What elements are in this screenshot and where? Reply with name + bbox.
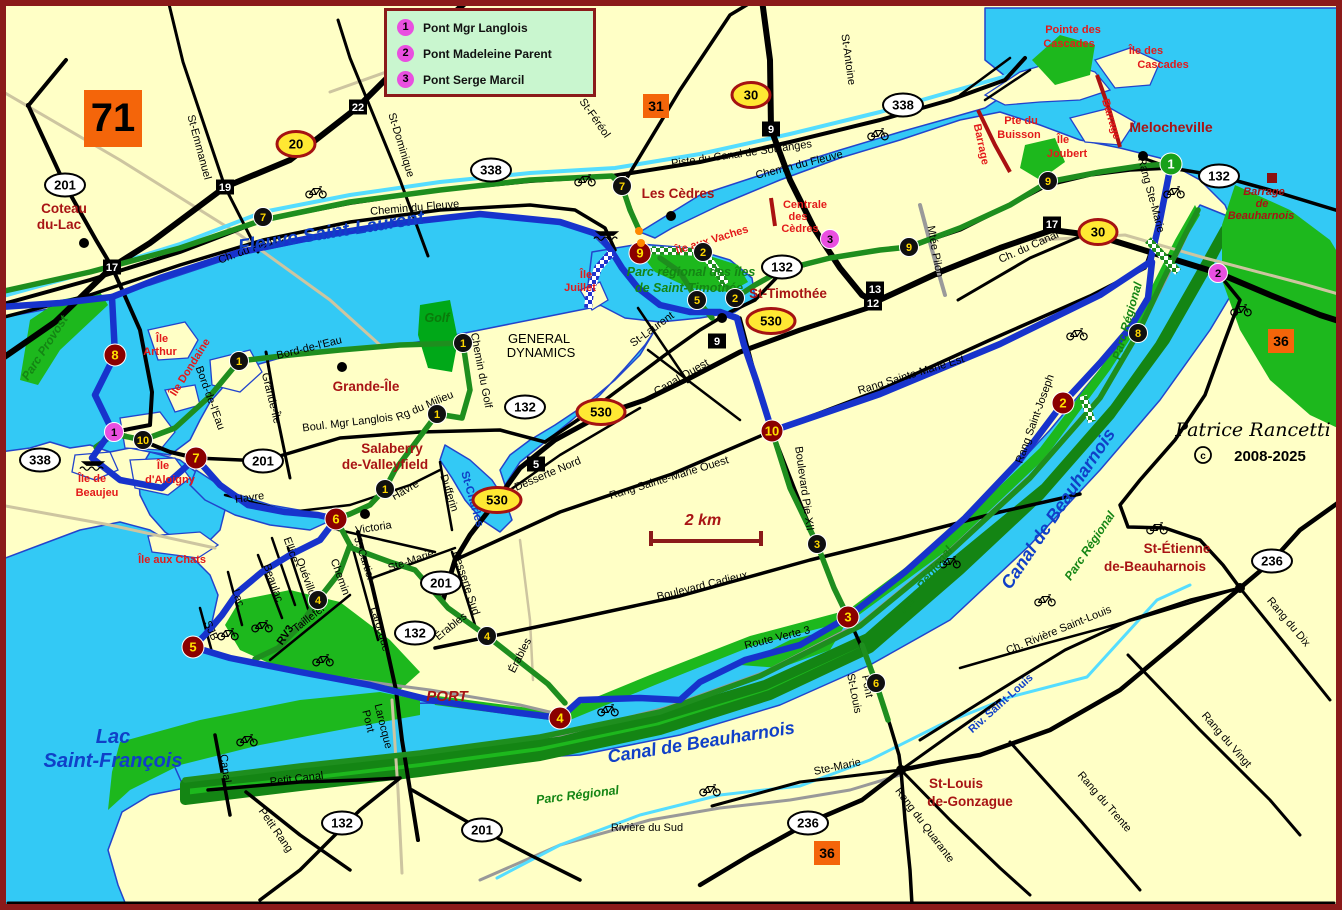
svg-text:13: 13 — [869, 284, 881, 296]
svg-text:5: 5 — [189, 640, 196, 655]
route-waypoint-marker: 10 — [761, 420, 783, 442]
svg-text:201: 201 — [252, 454, 274, 469]
svg-text:3: 3 — [844, 610, 851, 625]
map-number-plate: 71 — [84, 90, 142, 147]
svg-text:530: 530 — [486, 493, 508, 508]
map-label: Joubert — [1047, 148, 1088, 160]
route-shield: 236 — [788, 812, 828, 835]
town-dot — [666, 211, 676, 221]
map-label: d'Aloigny — [145, 474, 196, 486]
legend-item-label: Pont Mgr Langlois — [423, 21, 528, 35]
route-waypoint-marker: 5 — [182, 636, 204, 658]
autoroute-shield: 530 — [747, 309, 795, 334]
svg-text:2: 2 — [700, 247, 706, 259]
route-shield: 201 — [421, 572, 461, 595]
map-label: de — [1256, 198, 1269, 210]
beach-dot — [637, 239, 645, 247]
circuit-marker: 6 — [867, 674, 886, 693]
map-label: St-Louis — [929, 776, 983, 791]
route-shield: 236 — [1252, 550, 1292, 573]
svg-text:6: 6 — [873, 678, 879, 690]
svg-text:36: 36 — [1273, 333, 1289, 349]
route-waypoint-marker: 7 — [185, 447, 207, 469]
svg-text:3: 3 — [827, 234, 833, 246]
map-label: Beauharnois — [1228, 210, 1295, 222]
svg-text:17: 17 — [1046, 219, 1058, 231]
svg-text:9: 9 — [714, 336, 720, 348]
circuit-marker: 1 — [454, 334, 473, 353]
svg-text:236: 236 — [797, 816, 819, 831]
svg-text:7: 7 — [192, 451, 199, 466]
circuit-marker: 1 — [428, 405, 447, 424]
circuit-marker: 4 — [478, 627, 497, 646]
circuit-marker: 2 — [726, 289, 745, 308]
svg-text:1: 1 — [382, 484, 388, 496]
route-shield: 132 — [395, 622, 435, 645]
exit-number-marker: 17 — [103, 260, 121, 275]
route-shield: 338 — [471, 159, 511, 182]
svg-text:19: 19 — [219, 182, 231, 194]
legend-item: 3 Pont Serge Marcil — [397, 71, 583, 88]
circuit-marker: 4 — [309, 591, 328, 610]
map-label: DYNAMICS — [507, 345, 576, 360]
map-label: Cèdres — [781, 223, 818, 235]
town-dot — [79, 238, 89, 248]
svg-text:30: 30 — [1091, 225, 1105, 240]
exit-number-marker: 9 — [708, 334, 726, 349]
svg-text:201: 201 — [471, 823, 493, 838]
map-label: Coteau — [41, 201, 87, 216]
exit-number-marker: 9 — [762, 122, 780, 137]
svg-text:132: 132 — [514, 400, 536, 415]
svg-text:6: 6 — [332, 512, 339, 527]
svg-text:22: 22 — [352, 102, 364, 114]
svg-text:4: 4 — [315, 595, 322, 607]
circuit-marker: 2 — [694, 243, 713, 262]
svg-text:530: 530 — [760, 314, 782, 329]
route-shield: 201 — [462, 819, 502, 842]
exit-number-marker: 17 — [1043, 217, 1061, 232]
bridge-marker: 1 — [105, 423, 124, 442]
map-label: du-Lac — [37, 217, 82, 232]
autoroute-shield: 30 — [1079, 220, 1117, 245]
route-waypoint-marker: 4 — [549, 707, 571, 729]
circuit-marker: 5 — [688, 291, 707, 310]
svg-text:36: 36 — [819, 845, 835, 861]
exit-number-marker: 22 — [349, 100, 367, 115]
svg-text:338: 338 — [29, 453, 51, 468]
adjacent-map-ref: 31 — [643, 94, 669, 118]
circuit-marker: 9 — [1039, 172, 1058, 191]
legend-item: 2 Pont Madeleine Parent — [397, 45, 583, 62]
bridge-marker: 3 — [821, 230, 840, 249]
svg-text:4: 4 — [556, 711, 564, 726]
svg-text:9: 9 — [906, 242, 912, 254]
route-shield: 201 — [243, 450, 283, 473]
map-label: PORT — [426, 688, 469, 705]
svg-text:338: 338 — [892, 98, 914, 113]
circuit-marker: 1 — [376, 480, 395, 499]
town-dot — [896, 765, 906, 775]
svg-text:201: 201 — [430, 576, 452, 591]
map-label: Cascades — [1137, 59, 1188, 71]
svg-text:1: 1 — [236, 356, 242, 368]
route-shield: 132 — [762, 256, 802, 279]
adjacent-map-ref: 36 — [814, 841, 840, 865]
svg-text:3: 3 — [814, 539, 820, 551]
route-shield: 132 — [1199, 165, 1239, 188]
legend-item-label: Pont Serge Marcil — [423, 73, 524, 87]
route-shield: 132 — [505, 396, 545, 419]
svg-text:20: 20 — [289, 137, 303, 152]
svg-text:1: 1 — [434, 409, 440, 421]
svg-text:17: 17 — [106, 262, 118, 274]
svg-text:9: 9 — [768, 124, 774, 136]
map-canvas: St-EmmanuelSt-DominiqueSt-FéréolSt-Antoi… — [0, 0, 1342, 910]
adjacent-map-ref: 36 — [1268, 329, 1294, 353]
svg-text:c: c — [1200, 451, 1206, 462]
svg-text:10: 10 — [765, 424, 779, 439]
svg-text:7: 7 — [260, 212, 266, 224]
map-label: St-Étienne — [1144, 541, 1211, 556]
map-label: Golf — [425, 311, 452, 325]
svg-text:2: 2 — [1059, 396, 1066, 411]
circuit-marker: 1 — [230, 352, 249, 371]
route-waypoint-marker: 8 — [104, 344, 126, 366]
map-label: Beaujeu — [76, 487, 119, 499]
svg-text:5: 5 — [694, 295, 700, 307]
map-label: 2 km — [684, 512, 721, 529]
map-label: Pte du — [1004, 115, 1038, 127]
map-label: Île — [1056, 133, 1069, 146]
circuit-marker: 3 — [808, 535, 827, 554]
copyright-years: 2008-2025 — [1234, 448, 1306, 465]
exit-number-marker: 12 — [864, 296, 882, 311]
town-dot — [717, 313, 727, 323]
map-label: Île des — [1128, 44, 1163, 57]
bridge-2-badge: 2 — [397, 45, 414, 62]
svg-text:132: 132 — [331, 816, 353, 831]
autoroute-shield: 530 — [577, 400, 625, 425]
svg-text:8: 8 — [111, 348, 118, 363]
map-label: Melocheville — [1129, 119, 1212, 135]
svg-text:2: 2 — [1215, 268, 1221, 280]
map-label: Arthur — [143, 346, 177, 358]
exit-number-marker: 5 — [527, 457, 545, 472]
town-dot — [1235, 583, 1245, 593]
map-label: Centrale — [783, 199, 827, 211]
town-dot — [1138, 151, 1148, 161]
exit-number-marker: 13 — [866, 282, 884, 297]
map-label: Buisson — [997, 129, 1041, 141]
map-label: Lac — [96, 726, 130, 748]
svg-text:132: 132 — [404, 626, 426, 641]
route-waypoint-marker: 2 — [1052, 392, 1074, 414]
beach-dot — [635, 227, 643, 235]
svg-text:1: 1 — [460, 338, 466, 350]
svg-text:5: 5 — [533, 459, 539, 471]
route-shield: 132 — [322, 812, 362, 835]
svg-text:236: 236 — [1261, 554, 1283, 569]
map-label: GENERAL — [508, 331, 570, 346]
svg-text:9: 9 — [636, 246, 643, 261]
dam-symbol — [1267, 173, 1277, 183]
svg-text:2: 2 — [732, 293, 738, 305]
svg-text:7: 7 — [619, 181, 625, 193]
route-waypoint-marker: 3 — [837, 606, 859, 628]
bridge-marker: 2 — [1209, 264, 1228, 283]
route-shield: 201 — [45, 174, 85, 197]
map-label: Les Cèdres — [642, 186, 715, 201]
map-label: des — [789, 211, 808, 223]
map-label: de-Valleyfield — [342, 457, 428, 472]
circuit-marker: 10 — [134, 431, 153, 450]
bridge-3-badge: 3 — [397, 71, 414, 88]
circuit-marker: 8 — [1129, 324, 1148, 343]
bridge-1-badge: 1 — [397, 19, 414, 36]
svg-text:132: 132 — [1208, 169, 1230, 184]
map-label: Île — [156, 459, 169, 472]
exit-number-marker: 19 — [216, 180, 234, 195]
route-start-marker: 1 — [1160, 153, 1182, 175]
map-label: St-Timothée — [749, 286, 827, 301]
autoroute-shield: 20 — [277, 132, 315, 157]
map-label: Rivière du Sud — [611, 822, 683, 834]
map-label: Grande-Île — [333, 379, 400, 394]
route-shield: 338 — [883, 94, 923, 117]
map-label: Île — [155, 332, 168, 345]
map-label: Barrage — [1243, 186, 1285, 198]
map-label: Île de — [77, 472, 106, 485]
map-label: de-Gonzague — [927, 794, 1013, 809]
map-label: Salaberry — [361, 441, 423, 456]
svg-text:338: 338 — [480, 163, 502, 178]
svg-text:132: 132 — [771, 260, 793, 275]
svg-text:8: 8 — [1135, 328, 1141, 340]
circuit-marker: 7 — [254, 208, 273, 227]
circuit-marker: 7 — [613, 177, 632, 196]
autoroute-shield: 30 — [732, 83, 770, 108]
map-label: Île aux Chats — [137, 553, 206, 566]
autoroute-shield: 530 — [473, 488, 521, 513]
svg-text:30: 30 — [744, 88, 758, 103]
map-label: Cascades — [1043, 38, 1094, 50]
signature-text: Patrice Rancetti — [1174, 419, 1331, 441]
svg-text:530: 530 — [590, 405, 612, 420]
map-label: de-Beauharnois — [1104, 559, 1206, 574]
map-label: Île — [579, 268, 592, 281]
route-waypoint-marker: 6 — [325, 508, 347, 530]
map-label: Juillet — [564, 282, 596, 294]
svg-text:1: 1 — [1167, 157, 1174, 172]
svg-text:201: 201 — [54, 178, 76, 193]
cycling-map-71: St-EmmanuelSt-DominiqueSt-FéréolSt-Antoi… — [0, 0, 1342, 910]
legend-item-label: Pont Madeleine Parent — [423, 47, 552, 61]
svg-text:31: 31 — [648, 98, 664, 114]
town-dot — [360, 509, 370, 519]
svg-text:4: 4 — [484, 631, 491, 643]
map-label: Saint-François — [44, 750, 183, 772]
legend: 1 Pont Mgr Langlois 2 Pont Madeleine Par… — [384, 8, 596, 97]
map-label: Parc régional des îles — [627, 265, 756, 279]
legend-item: 1 Pont Mgr Langlois — [397, 19, 583, 36]
town-dot — [337, 362, 347, 372]
svg-text:9: 9 — [1045, 176, 1051, 188]
svg-text:12: 12 — [867, 298, 879, 310]
svg-text:10: 10 — [137, 435, 149, 447]
svg-text:1: 1 — [111, 427, 117, 439]
route-shield: 338 — [20, 449, 60, 472]
map-label: Pointe des — [1045, 24, 1101, 36]
circuit-marker: 9 — [900, 238, 919, 257]
